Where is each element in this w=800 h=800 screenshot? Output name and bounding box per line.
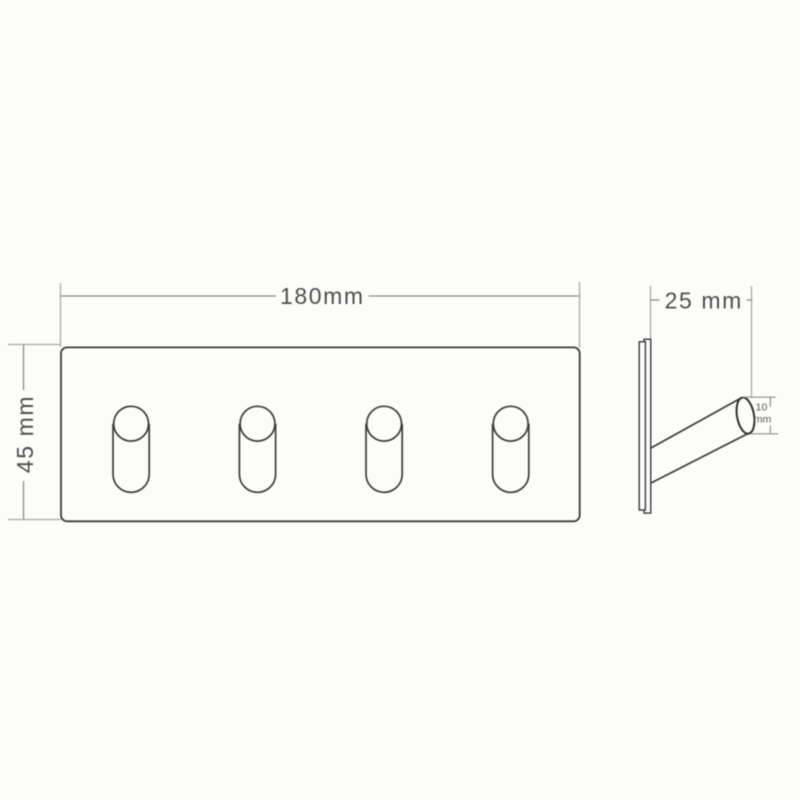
svg-text:45 mm: 45 mm [12,395,38,473]
svg-text:mm: mm [754,414,772,426]
svg-text:180mm: 180mm [280,283,365,309]
svg-text:10: 10 [756,402,768,414]
svg-text:25 mm: 25 mm [665,288,743,314]
